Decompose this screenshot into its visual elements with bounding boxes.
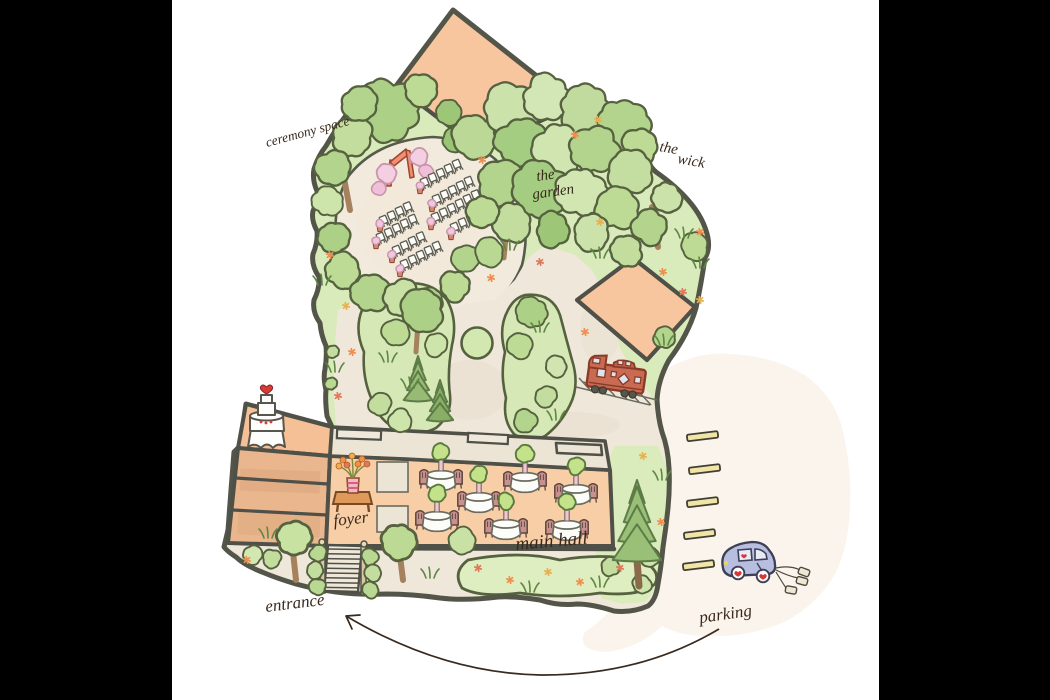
svg-text:the: the: [658, 139, 679, 158]
svg-text:the: the: [535, 167, 556, 185]
svg-text:foyer: foyer: [332, 507, 369, 530]
